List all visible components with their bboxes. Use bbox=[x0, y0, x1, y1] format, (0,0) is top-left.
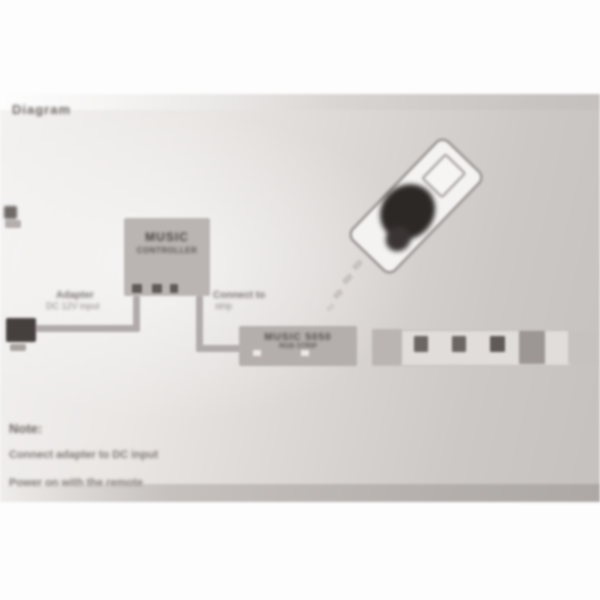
remote-control bbox=[345, 134, 487, 278]
connector-solder-pad bbox=[253, 350, 261, 356]
controller-label-line1: MUSIC bbox=[124, 230, 210, 244]
instruction-sheet: Diagram MUSIC CONTROLLER Adapter DC 12V … bbox=[0, 94, 600, 502]
notes-line1: Connect adapter to DC input bbox=[9, 449, 158, 461]
margin-mark-shadow bbox=[5, 220, 21, 228]
controller-output-wire-vertical bbox=[196, 296, 203, 352]
sheet-title: Diagram bbox=[12, 102, 71, 117]
notes-line2: Power on with the remote bbox=[9, 477, 143, 489]
ir-signal-dash bbox=[332, 288, 343, 299]
strip-connector-text1: MUSIC 5050 bbox=[239, 332, 357, 343]
power-plug-shadow bbox=[10, 344, 26, 351]
output-label-line2: strip bbox=[215, 301, 232, 311]
adapter-wire bbox=[36, 325, 140, 332]
connector-solder-pad bbox=[301, 350, 309, 356]
controller-pin bbox=[170, 284, 178, 293]
strip-end-cap bbox=[568, 331, 600, 364]
output-label-line1: Connect to bbox=[213, 290, 265, 301]
margin-mark bbox=[4, 206, 17, 219]
ir-signal-dash bbox=[352, 259, 364, 271]
controller-input-wire bbox=[133, 296, 140, 330]
controller-output-wire-horizontal bbox=[196, 345, 244, 352]
strip-module bbox=[519, 331, 545, 364]
ir-signal-dash bbox=[326, 303, 336, 313]
strip-connector-text2: RGB STRIP bbox=[239, 343, 357, 350]
ir-signal-dash bbox=[342, 273, 354, 285]
led-chip bbox=[414, 336, 428, 352]
led-strip-joint bbox=[372, 329, 402, 365]
led-chip bbox=[452, 336, 466, 352]
controller-pin bbox=[132, 284, 142, 293]
controller-label-line2: CONTROLLER bbox=[124, 246, 210, 255]
controller-pin bbox=[152, 284, 162, 293]
notes-title: Note: bbox=[9, 421, 42, 436]
adapter-label-line1: Adapter bbox=[56, 290, 94, 301]
adapter-label-line2: DC 12V input bbox=[46, 301, 100, 311]
strip-connector-block: MUSIC 5050 RGB STRIP bbox=[239, 326, 357, 366]
photo-canvas: Diagram MUSIC CONTROLLER Adapter DC 12V … bbox=[0, 0, 600, 600]
led-chip bbox=[490, 336, 505, 352]
power-plug bbox=[6, 318, 36, 342]
